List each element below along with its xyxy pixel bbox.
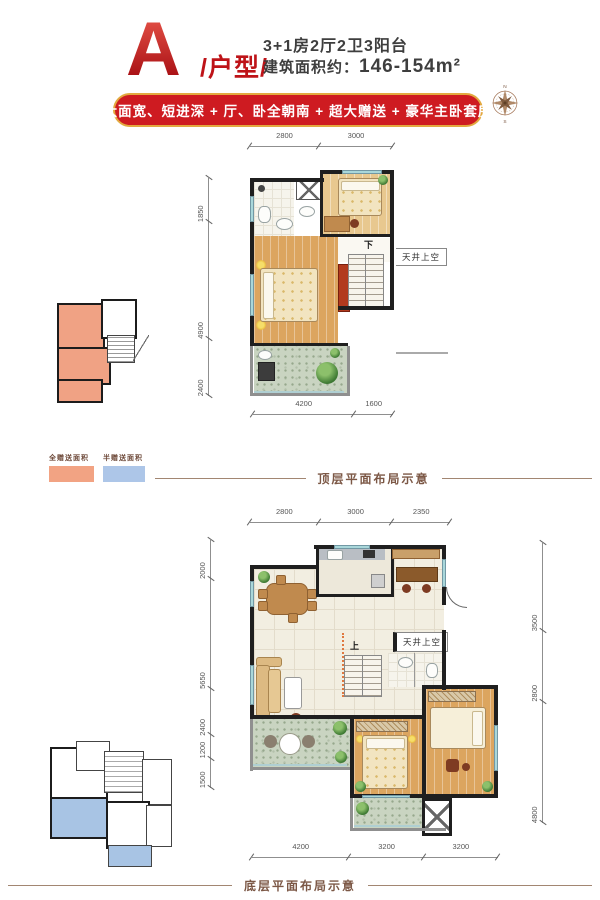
shower-icon	[258, 185, 265, 192]
mini-room	[106, 801, 150, 849]
top-caption-text: 顶层平面布局示意	[318, 470, 430, 487]
fridge-icon	[371, 574, 385, 588]
coffee-table-icon	[284, 677, 302, 709]
wall	[320, 170, 323, 236]
dim-rail-left: 20005650240012001500	[200, 540, 214, 788]
chair-icon	[288, 613, 298, 623]
partition	[414, 653, 415, 687]
top-floor-plan: 28003000 185049002400 42001600	[190, 130, 460, 422]
mini-room	[146, 805, 172, 847]
window-glass	[254, 391, 344, 393]
plant-icon	[482, 781, 493, 792]
armchair-icon	[446, 759, 459, 772]
pillow	[472, 711, 483, 746]
floor-area-line: 建筑面积约：146-154m²	[263, 56, 461, 78]
closet	[296, 180, 322, 200]
outside	[250, 770, 350, 837]
pillow	[263, 272, 274, 319]
window	[250, 581, 254, 607]
patio-table-icon	[279, 733, 301, 755]
mini-void-line	[133, 335, 149, 361]
wall	[250, 343, 348, 346]
toilet-icon	[258, 206, 271, 223]
dining-table-icon	[266, 583, 308, 615]
plant-icon	[356, 802, 369, 815]
bottom-floor-plan: 280030002350 20005650240012001500 350028…	[195, 505, 565, 867]
mini-room	[57, 303, 105, 353]
terrace	[254, 346, 348, 394]
mini-stairs	[104, 751, 144, 793]
window	[250, 196, 254, 222]
bed-icon	[338, 178, 382, 216]
master-bed-icon	[430, 707, 486, 749]
wall	[350, 715, 354, 798]
mini-stairs	[107, 335, 135, 363]
window-glass	[253, 764, 347, 766]
lamp-icon	[408, 735, 416, 743]
bottom-floor-plan-drawing: 上 天井上空	[250, 545, 498, 837]
unit-spec-title: 3+1房2厅2卫3阳台	[263, 32, 408, 56]
chair-icon	[258, 589, 268, 599]
lightwell-void-label: 天井上空	[393, 632, 448, 652]
dim-rail-bottom: 42001600	[253, 404, 393, 417]
void-outline	[396, 352, 448, 354]
stove-icon	[363, 550, 375, 558]
dim-rail-top: 280030002350	[250, 512, 450, 525]
plant-icon	[258, 571, 270, 583]
chair-icon	[350, 219, 359, 228]
mini-room	[142, 759, 172, 805]
lightwell-void-label: 天井上空	[396, 248, 447, 266]
stairs-down-label: 下	[364, 238, 373, 251]
ottoman-icon	[462, 763, 470, 771]
area-value: 146-154m²	[359, 56, 461, 77]
flyer-page: A /户型/ 3+1房2厅2卫3阳台 建筑面积约：146-154m² 大面宽、短…	[0, 0, 600, 900]
legend-swatch-half-gift	[103, 466, 145, 482]
plant-icon	[316, 362, 338, 384]
wall	[250, 715, 342, 719]
dim-rail-top: 28003000	[250, 136, 393, 149]
window	[334, 545, 370, 549]
kitchen-sink-icon	[327, 550, 343, 560]
window-glass	[354, 825, 420, 827]
legend-swatch-full-gift	[49, 466, 94, 482]
compass-south-label: S	[503, 119, 506, 124]
mini-room	[57, 379, 103, 403]
wall	[422, 794, 498, 798]
wall	[342, 715, 426, 719]
wall	[250, 565, 318, 569]
wall	[250, 178, 324, 182]
bed-icon	[362, 735, 408, 789]
staircase	[348, 254, 384, 308]
desk-icon	[324, 216, 350, 232]
pillow	[341, 181, 380, 191]
wall	[320, 234, 394, 237]
mini-balcony-half-gift	[108, 845, 152, 867]
patio-chair-icon	[302, 735, 315, 748]
legend-label-full-gift: 全赠送面积	[49, 453, 94, 463]
plant-icon	[378, 175, 388, 185]
terrace	[253, 719, 350, 769]
caption-line	[155, 478, 306, 479]
legend-item-half-gift: 半赠送面积	[103, 453, 145, 482]
chair-icon	[402, 584, 411, 593]
bathroom	[254, 180, 294, 236]
area-label: 建筑面积约：	[263, 59, 359, 76]
terrace-wall	[347, 346, 350, 396]
logo-letter-a: A	[126, 12, 181, 88]
mini-room-half-gift	[50, 797, 108, 839]
selling-points-text: 大面宽、短进深 + 厅、卧全朝南 + 超大赠送 + 豪华主卧套房	[104, 100, 493, 120]
wardrobe	[356, 721, 408, 732]
terrace-wall	[250, 346, 253, 396]
legend-label-half-gift: 半赠送面积	[103, 453, 145, 463]
patio-chair-icon	[264, 735, 277, 748]
caption-line	[8, 885, 232, 886]
chair-icon	[307, 601, 317, 611]
wall	[422, 685, 498, 689]
bottom-caption: 底层平面布局示意	[8, 877, 592, 894]
stair-rail	[365, 255, 366, 307]
window	[494, 725, 498, 771]
window	[342, 170, 382, 174]
wall	[442, 630, 446, 690]
window	[250, 274, 254, 316]
wall	[338, 306, 394, 310]
selling-points-banner: 大面宽、短进深 + 厅、卧全朝南 + 超大赠送 + 豪华主卧套房	[113, 93, 483, 127]
balcony-wall	[350, 798, 353, 831]
legend-item-full-gift: 全赠送面积	[49, 453, 94, 482]
compass-icon: N S	[486, 82, 524, 124]
sofa-cushion	[268, 669, 281, 713]
caption-line	[368, 885, 592, 886]
basin-icon	[258, 350, 272, 360]
bookshelf-icon	[392, 549, 440, 559]
dim-rail-bottom: 420032003200	[252, 847, 498, 860]
window	[250, 665, 254, 705]
top-floor-plan-drawing: 下	[250, 170, 394, 398]
pillow	[366, 738, 405, 749]
washer-icon	[258, 362, 275, 381]
window	[362, 795, 410, 798]
terrace-wall	[250, 767, 350, 770]
sink-icon	[398, 657, 413, 668]
bottom-caption-text: 底层平面布局示意	[244, 877, 356, 894]
study-desk-icon	[396, 567, 438, 582]
stair-rail	[362, 656, 363, 696]
bathroom	[388, 653, 444, 687]
staircase	[344, 655, 382, 697]
chair-icon	[422, 584, 431, 593]
vanity-sink-icon	[299, 206, 315, 217]
chair-icon	[276, 575, 286, 585]
dim-rail-left: 185049002400	[198, 178, 212, 396]
plant-icon	[330, 348, 340, 358]
unit-type-label: /户型/	[200, 48, 268, 84]
master-bed-icon	[260, 268, 318, 322]
top-caption: 顶层平面布局示意	[155, 470, 592, 487]
toilet-icon	[426, 663, 438, 678]
mini-room	[101, 299, 137, 339]
balcony-wall	[350, 828, 446, 831]
outside	[446, 545, 498, 685]
plant-icon	[333, 721, 347, 735]
wall	[390, 170, 394, 310]
terrace-wall	[250, 393, 350, 396]
mini-plan-top	[55, 297, 150, 403]
sink-icon	[276, 218, 293, 230]
plant-icon	[335, 751, 347, 763]
mini-plan-bottom	[46, 741, 178, 877]
legend: 全赠送面积 半赠送面积	[49, 453, 145, 482]
wall	[422, 685, 426, 798]
compass-north-label: N	[503, 84, 507, 90]
dim-rail-right: 350028004800	[532, 543, 546, 823]
plant-icon	[355, 781, 366, 792]
wardrobe	[428, 691, 476, 702]
window	[442, 559, 446, 587]
stairs-up-label: 上	[350, 639, 359, 652]
kitchen	[316, 545, 394, 597]
chair-icon	[258, 601, 268, 611]
caption-line	[442, 478, 593, 479]
outside	[250, 545, 316, 567]
